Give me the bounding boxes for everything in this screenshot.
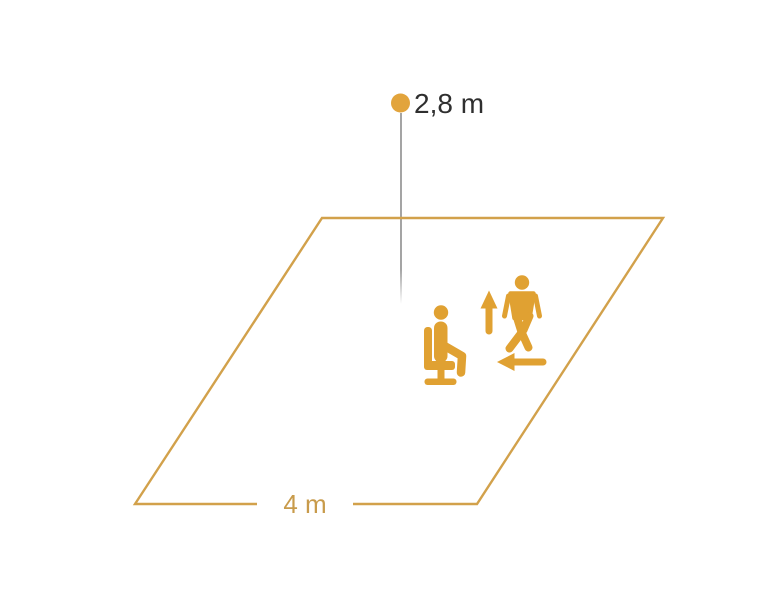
detection-area-floor <box>135 218 663 504</box>
diagram-canvas: 2,8 m 4 m <box>0 0 766 607</box>
floor-width-label: 4 m <box>283 489 326 519</box>
mounting-height-label: 2,8 m <box>414 88 484 119</box>
walking-person-icon <box>505 275 540 348</box>
left-arrow-icon <box>497 353 543 371</box>
mounting-height-diagram: 2,8 m 4 m <box>0 0 766 607</box>
seated-person-icon <box>424 305 462 385</box>
sensor-point <box>391 94 410 113</box>
up-arrow-icon <box>481 291 498 332</box>
